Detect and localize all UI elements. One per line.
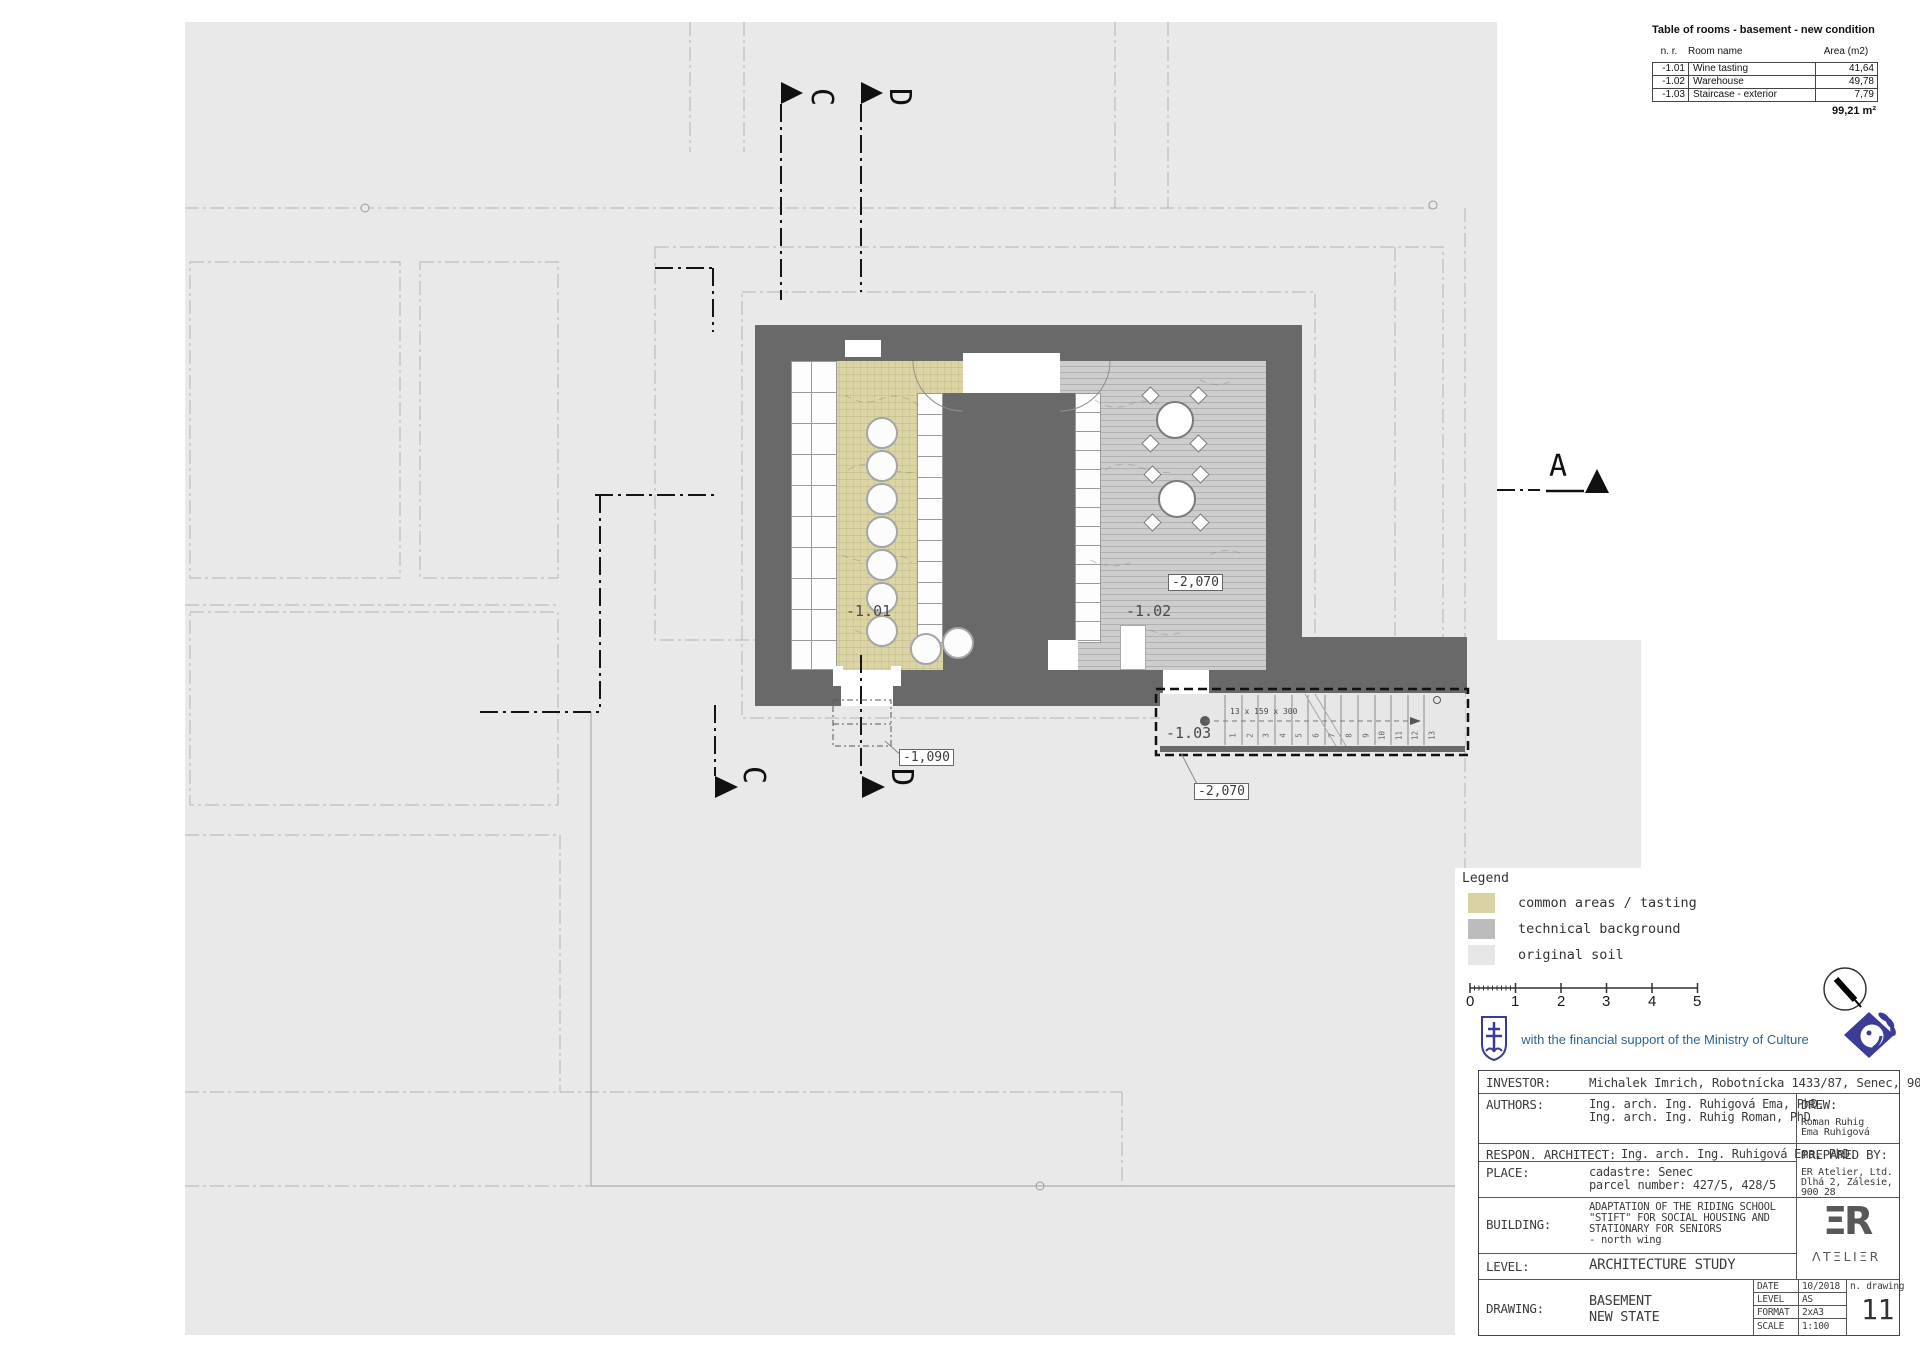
- prepared-line3: 900 28: [1801, 1187, 1835, 1198]
- rooms-table-header: n. r. Room name Area (m2): [1652, 46, 1878, 57]
- stair-marker-circle: [1434, 697, 1441, 704]
- ministry-support-note: with the financial support of the Minist…: [1500, 1032, 1830, 1047]
- wine-barrel: [910, 633, 942, 665]
- section-letter-c-top: C: [806, 88, 836, 106]
- round-table: [1156, 401, 1194, 439]
- scale-number: 0: [1466, 993, 1474, 1010]
- north-arrow-icon: [1822, 966, 1868, 1012]
- wine-barrel: [866, 483, 898, 515]
- building-label: BUILDING:: [1486, 1217, 1551, 1232]
- authors-line1: Ing. arch. Ing. Ruhigová Ema, PhD.: [1589, 1097, 1824, 1111]
- title-block: INVESTOR: Michalek Imrich, Robotnícka 14…: [1478, 1070, 1900, 1336]
- scale-number: 1: [1511, 993, 1519, 1010]
- col-header-name: Room name: [1686, 46, 1814, 57]
- prepared-by-label: PREPARED BY:: [1801, 1147, 1888, 1162]
- authors-line2: Ing. arch. Ing. Ruhig Roman, PhD.: [1589, 1110, 1818, 1124]
- place-line2: parcel number: 427/5, 428/5: [1589, 1178, 1776, 1192]
- stair-tread-number: 7: [1328, 731, 1337, 741]
- scale-bar-line: [1469, 980, 1709, 994]
- stair-dimension-note: 13 x 159 x 300: [1230, 707, 1297, 716]
- rooms-table-total: 99,21 m²: [1652, 105, 1878, 117]
- stair-tread-number: 11: [1395, 731, 1404, 741]
- section-letter-d-bottom: D: [886, 768, 916, 786]
- drawing-number-value: 11: [1861, 1293, 1894, 1326]
- room-number-103: -1.03: [1166, 724, 1211, 742]
- scale-number: 5: [1693, 993, 1701, 1010]
- wine-barrel: [942, 627, 974, 659]
- section-flag-icons: [715, 82, 1609, 798]
- section-letter-c-bottom: C: [738, 766, 768, 784]
- legend-label-soil: original soil: [1518, 947, 1624, 963]
- stair-tread-number: 4: [1279, 731, 1288, 741]
- level-label: LEVEL:: [1486, 1259, 1529, 1274]
- drawing-line1: BASEMENT: [1589, 1293, 1652, 1309]
- meta-date-label: DATE: [1757, 1281, 1779, 1292]
- er-atelier-logo-icon: ΞR: [1823, 1199, 1870, 1243]
- table-row: -1.02 Warehouse 49,78: [1652, 76, 1878, 89]
- stair-walkline-arrow: [1410, 717, 1421, 725]
- meta-scale-value: 1:100: [1802, 1321, 1829, 1332]
- drawing-line2: NEW STATE: [1589, 1309, 1659, 1325]
- authors-label: AUTHORS:: [1486, 1097, 1544, 1112]
- stair-tread-number: 9: [1362, 731, 1371, 741]
- stair-tread-number: 1: [1229, 731, 1238, 741]
- round-table: [1158, 480, 1196, 518]
- stair-tread-number: 8: [1345, 731, 1354, 741]
- col-header-nr: n. r.: [1652, 46, 1686, 57]
- rooms-table-title: Table of rooms - basement - new conditio…: [1652, 24, 1878, 36]
- elevation-label-warehouse: -2,070: [1168, 574, 1223, 591]
- place-line1: cadastre: Senec: [1589, 1165, 1693, 1179]
- er-atelier-wordmark: ΛΤΞLΙΞR: [1812, 1249, 1881, 1264]
- section-letter-a: A: [1549, 452, 1567, 482]
- stair-tread-number: 12: [1411, 731, 1420, 741]
- stair-tread-number: 13: [1428, 731, 1437, 741]
- scale-number: 4: [1648, 993, 1656, 1010]
- door-swing-arcs: [913, 361, 1110, 411]
- legend-title: Legend: [1462, 871, 1509, 886]
- ministry-of-culture-logo-icon: [1840, 1008, 1898, 1062]
- legend-swatch-technical: [1468, 919, 1495, 939]
- wine-barrel: [866, 516, 898, 548]
- table-row: -1.03 Staircase - exterior 7,79: [1652, 89, 1878, 102]
- stair-tread-number: 10: [1378, 731, 1387, 741]
- meta-level-value: AS: [1802, 1294, 1813, 1305]
- rooms-table: Table of rooms - basement - new conditio…: [1652, 24, 1878, 117]
- meta-format-value: 2xA3: [1802, 1307, 1824, 1318]
- level-value: ARCHITECTURE STUDY: [1589, 1257, 1735, 1273]
- drawing-number-label: n. drawing: [1850, 1281, 1904, 1292]
- wine-barrel: [866, 450, 898, 482]
- table-row: -1.01 Wine tasting 41,64: [1652, 63, 1878, 76]
- respon-architect-label: RESPON. ARCHITECT:: [1486, 1147, 1616, 1162]
- legend-swatch-soil: [1468, 945, 1495, 965]
- drawing-label: DRAWING:: [1486, 1301, 1544, 1316]
- stair-tread-number: 2: [1246, 731, 1255, 741]
- wine-barrel: [866, 549, 898, 581]
- legend-swatch-common: [1468, 893, 1495, 913]
- section-letter-d-top: D: [884, 88, 914, 106]
- wine-barrel: [866, 417, 898, 449]
- investor-label: INVESTOR:: [1486, 1075, 1551, 1090]
- meta-scale-label: SCALE: [1757, 1321, 1784, 1332]
- drew-line2: Ema Ruhigová: [1801, 1127, 1870, 1138]
- drew-label: DREW:: [1801, 1097, 1837, 1112]
- stair-tread-number: 6: [1312, 731, 1321, 741]
- scale-bar: 0 1 2 3 4 5: [1469, 980, 1709, 1012]
- legend-label-technical: technical background: [1518, 921, 1681, 937]
- room-number-102: -1.02: [1126, 602, 1171, 620]
- meta-date-value: 10/2018: [1802, 1281, 1840, 1292]
- room-number-101: -1.01: [846, 602, 891, 620]
- place-label: PLACE:: [1486, 1165, 1529, 1180]
- elevation-label-stairs: -2,070: [1194, 783, 1249, 800]
- stair-tread-number: 3: [1262, 731, 1271, 741]
- elevation-label-entry: -1,090: [899, 749, 954, 766]
- investor-value: Michalek Imrich, Robotnícka 1433/87, Sen…: [1589, 1075, 1920, 1090]
- section-lines: [480, 104, 1540, 776]
- scale-number: 2: [1557, 993, 1565, 1010]
- legend-label-common: common areas / tasting: [1518, 895, 1697, 911]
- col-header-area: Area (m2): [1814, 46, 1878, 57]
- meta-level-label: LEVEL: [1757, 1294, 1784, 1305]
- scale-number: 3: [1602, 993, 1610, 1010]
- stair-tread-number: 5: [1295, 731, 1304, 741]
- building-line4: - north wing: [1589, 1234, 1661, 1246]
- meta-format-label: FORMAT: [1757, 1307, 1790, 1318]
- drawing-page: -1.01 -1.02 -1.03 -2,070 -2,070 -1,090 1…: [0, 0, 1920, 1357]
